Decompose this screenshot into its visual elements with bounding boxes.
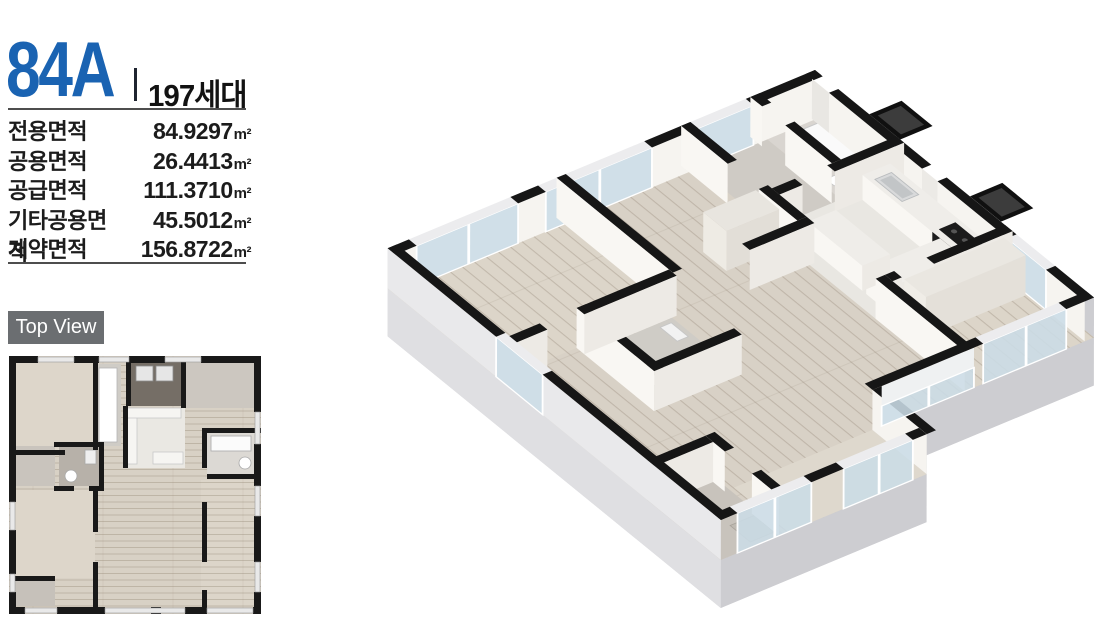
floorplan-canvas	[0, 0, 1100, 623]
floorplan-3d	[316, 57, 1100, 608]
floorplan-page: 84A 197세대 전용면적 84.9297m² 공용면적 26.4413m² …	[0, 0, 1100, 623]
floorplan-topview	[9, 356, 261, 614]
